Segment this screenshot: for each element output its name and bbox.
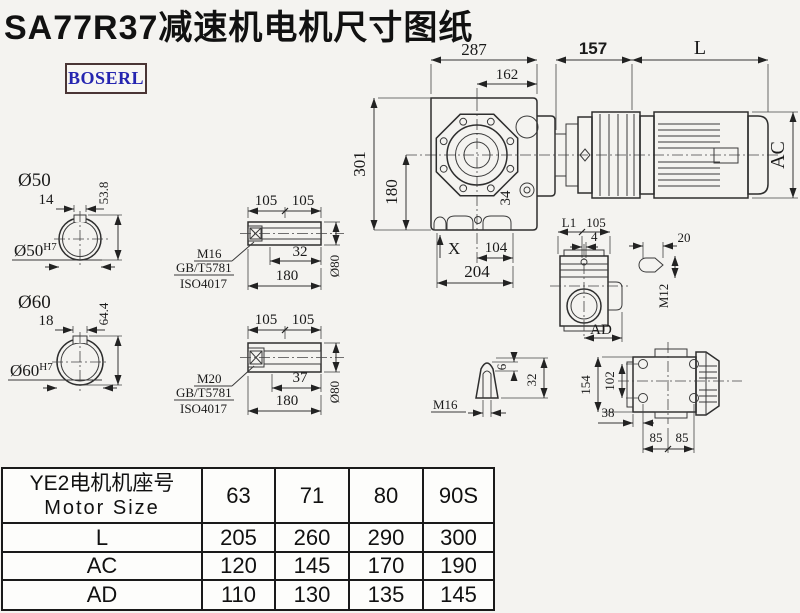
dim-AD: AD (590, 322, 612, 338)
brand-logo-text: BOSERL (68, 68, 144, 89)
AD-90S: 145 (423, 580, 494, 610)
AC-80: 170 (349, 552, 423, 580)
rear-fan-cover (696, 352, 719, 415)
shaft50-label: Ø50 (18, 170, 51, 191)
dim-105e: 105 (586, 215, 606, 230)
cone-thread: M16 (433, 397, 458, 412)
dim-L: L (694, 37, 706, 59)
shaft60-view: Ø60 18 64.4 Ø60H7 (8, 292, 122, 391)
side-housing-view: L1 105 4 AD (550, 215, 628, 342)
dim-4: 4 (591, 229, 598, 244)
bore50-label: Ø50H7 (14, 241, 57, 260)
header-en: Motor Size (3, 496, 201, 520)
gearbox-bell-housing (537, 116, 555, 196)
sleeve1-std2: ISO4017 (180, 276, 227, 291)
table-header-row: YE2电机机座号 Motor Size 63 71 80 90S (2, 468, 494, 523)
brand-logo: BOSERL (65, 63, 147, 94)
dim-180-1: 180 (276, 268, 299, 284)
sleeve2-view: 105 105 Ø80 37 180 M20 GB/T5781 ISO4017 (174, 312, 344, 416)
dim-105a: 105 (255, 193, 278, 209)
dim-85b: 85 (676, 430, 689, 445)
AC-63: 120 (202, 552, 275, 580)
dim-64-4: 64.4 (96, 302, 111, 325)
sleeve2-std1: GB/T5781 (176, 385, 232, 400)
bore60-label: Ø60H7 (10, 361, 53, 380)
dim-204: 204 (464, 262, 490, 281)
oil-plug (434, 217, 446, 230)
table-row-L: L 205 260 290 300 (2, 523, 494, 552)
dim-d80-2: Ø80 (327, 381, 342, 403)
dim-14: 14 (39, 192, 55, 208)
AD-80: 135 (349, 580, 423, 610)
sleeve1-view: 105 105 Ø80 32 180 M16 GB/T5781 ISO4017 (174, 193, 344, 291)
dim-32: 32 (293, 244, 308, 260)
dim-38: 38 (602, 405, 615, 420)
AD-63: 110 (202, 580, 275, 610)
row-label-AD: AD (2, 580, 202, 610)
L-71: 260 (275, 523, 349, 552)
key-shape (639, 258, 663, 272)
dim-20: 20 (678, 230, 691, 245)
sleeve1-std1: GB/T5781 (176, 260, 232, 275)
dim-L1: L1 (562, 215, 576, 230)
motor-size-table: YE2电机机座号 Motor Size 63 71 80 90S L 205 2… (1, 467, 495, 611)
dim-AC: AC (767, 141, 789, 169)
table-row-AD: AD 110 130 135 145 (2, 580, 494, 610)
dim-d80-1: Ø80 (327, 255, 342, 277)
dim-85a: 85 (650, 430, 663, 445)
dim-157: 157 (579, 39, 607, 58)
dim-105b: 105 (292, 193, 315, 209)
size-71: 71 (275, 468, 349, 523)
dim-18: 18 (39, 313, 54, 329)
dim-6: 6 (494, 363, 509, 370)
dim-53-8: 53.8 (96, 182, 111, 205)
AC-90S: 190 (423, 552, 494, 580)
table-row-AC: AC 120 145 170 190 (2, 552, 494, 580)
shaft50-view: Ø50 14 53.8 Ø50H7 (12, 170, 122, 267)
sleeve1-thread: M16 (197, 246, 222, 261)
row-label-AC: AC (2, 552, 202, 580)
dim-154: 154 (578, 375, 593, 395)
rear-fins (699, 366, 717, 402)
AC-71: 145 (275, 552, 349, 580)
row-label-L: L (2, 523, 202, 552)
dim-M12: M12 (656, 284, 671, 309)
rear-view: 154 102 38 85 85 (578, 342, 742, 453)
sleeve2-thread: M20 (197, 371, 222, 386)
AD-71: 130 (275, 580, 349, 610)
L-80: 290 (349, 523, 423, 552)
dim-180: 180 (382, 179, 401, 205)
shaft60-label: Ø60 (18, 292, 51, 313)
L-63: 205 (202, 523, 275, 552)
dim-104: 104 (485, 240, 508, 256)
rear-body (633, 357, 696, 412)
dim-32b: 32 (524, 374, 539, 387)
size-90S: 90S (423, 468, 494, 523)
key-detail: 20 M12 (629, 230, 691, 308)
dim-162: 162 (496, 67, 519, 83)
dim-105c: 105 (255, 312, 278, 328)
cone-detail: M16 6 32 (431, 353, 548, 417)
header-zh: YE2电机机座号 (3, 471, 201, 496)
dim-105d: 105 (292, 312, 315, 328)
size-63: 63 (202, 468, 275, 523)
L-90S: 300 (423, 523, 494, 552)
dim-X: X (448, 239, 460, 258)
dim-37: 37 (293, 370, 309, 386)
size-80: 80 (349, 468, 423, 523)
dim-301: 301 (350, 151, 369, 177)
dim-102: 102 (602, 371, 617, 391)
page-title: SA77R37减速机电机尺寸图纸 (4, 0, 473, 49)
header-motor-size-cell: YE2电机机座号 Motor Size (2, 468, 202, 523)
sleeve2-std2: ISO4017 (180, 401, 227, 416)
dim-180-2: 180 (276, 393, 299, 409)
dim-34: 34 (498, 190, 514, 206)
drawing-sheet: { "title": "SA77R37减速机电机尺寸图纸", "logo": "… (0, 0, 800, 613)
